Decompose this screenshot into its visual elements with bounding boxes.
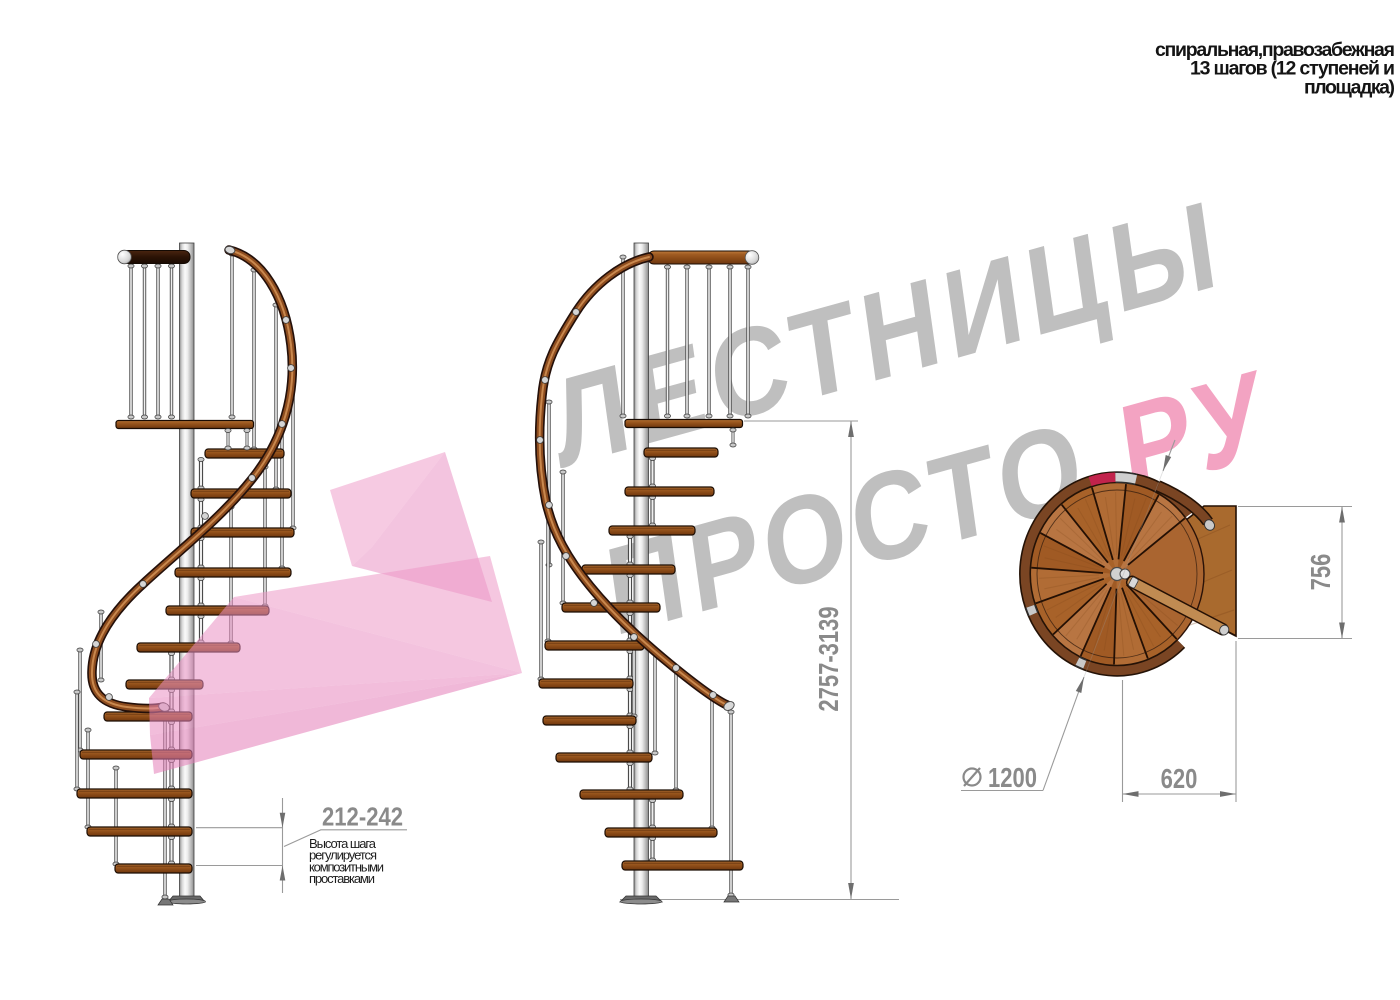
svg-text:2757-3139: 2757-3139 — [814, 606, 845, 711]
svg-text:1200: 1200 — [988, 763, 1037, 794]
svg-text:Высота шагарегулируетсякомпози: Высота шагарегулируетсякомпозитнымипрост… — [309, 836, 384, 886]
svg-text:756: 756 — [1306, 554, 1337, 591]
svg-text:212-242: 212-242 — [322, 803, 403, 832]
svg-text:620: 620 — [1161, 764, 1198, 795]
